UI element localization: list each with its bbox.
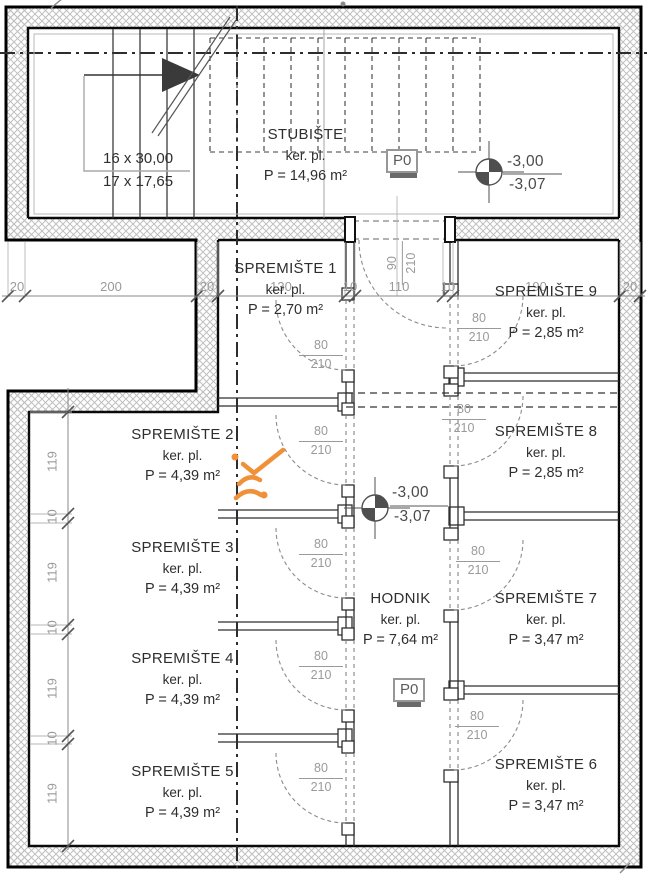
door-width: 80 [299,649,343,667]
room-area: P = 3,47 m² [472,798,620,814]
door-height: 210 [311,556,332,570]
dim-label: 10 [45,497,60,537]
room-name: STUBIŠTE [233,126,378,143]
door-height: 210 [404,253,418,274]
door-size-label: 80 210 [299,537,343,571]
dim-label: 10 [45,719,60,759]
dim-label: 10 [45,608,60,648]
door-width: 80 [456,544,500,562]
room-area: P = 2,70 m² [213,302,358,318]
stair-riser-count: 16 x 30,00 [103,150,173,167]
dim-label: 119 [45,442,60,482]
room-material: ker. pl. [328,612,473,627]
dim-label: 119 [45,553,60,593]
dim-label: 119 [45,669,60,709]
room-area: P = 4,39 m² [110,692,255,708]
room-name: SPREMIŠTE 1 [213,260,358,277]
room-name: SPREMIŠTE 2 [110,426,255,443]
door-height: 210 [454,421,475,435]
room-name: SPREMIŠTE 4 [110,650,255,667]
room-area: P = 4,39 m² [110,581,255,597]
room-area: P = 2,85 m² [472,465,620,481]
door-size-label: 80 210 [442,402,486,436]
level-value-lower: -3,07 [394,508,431,526]
room-material: ker. pl. [472,778,620,793]
door-width: 90 [385,241,403,285]
room-material: ker. pl. [110,785,255,800]
level-value-upper: -3,00 [507,153,544,171]
door-width: 80 [299,537,343,555]
room-name: SPREMIŠTE 3 [110,539,255,556]
door-size-label: 80 210 [457,311,501,345]
room-name: SPREMIŠTE 9 [472,283,620,300]
dim-label: 10 [428,279,468,294]
room-label-spremiste-6: SPREMIŠTE 6 ker. pl. P = 3,47 m² [472,756,620,814]
stair-riser-size: 17 x 17,65 [103,173,173,190]
room-name: SPREMIŠTE 7 [472,590,620,607]
room-area: P = 4,39 m² [110,805,255,821]
level-value-lower: -3,07 [509,176,546,194]
room-material: ker. pl. [233,148,378,163]
room-label-stubiste: STUBIŠTE ker. pl. P = 14,96 m² [233,126,378,184]
door-width: 80 [299,338,343,356]
door-size-label: 80 210 [299,338,343,372]
floor-stamp-p0: P0 [386,149,418,173]
room-area: P = 14,96 m² [233,168,378,184]
door-size-label: 80 210 [299,761,343,795]
room-material: ker. pl. [110,561,255,576]
door-size-label: 80 210 [455,709,499,743]
dim-label: 119 [45,774,60,814]
room-label-spremiste-1: SPREMIŠTE 1 ker. pl. P = 2,70 m² [213,260,358,318]
door-height: 210 [467,728,488,742]
room-area: P = 4,39 m² [110,468,255,484]
room-label-spremiste-4: SPREMIŠTE 4 ker. pl. P = 4,39 m² [110,650,255,708]
door-width: 80 [442,402,486,420]
room-label-spremiste-3: SPREMIŠTE 3 ker. pl. P = 4,39 m² [110,539,255,597]
door-size-label: 80 210 [456,544,500,578]
floor-plan: STUBIŠTE ker. pl. P = 14,96 m² 16 x 30,0… [0,0,647,874]
door-height: 210 [311,780,332,794]
door-width: 80 [457,311,501,329]
door-width: 80 [455,709,499,727]
door-height: 210 [469,330,490,344]
door-size-label: 80 210 [299,649,343,683]
room-name: HODNIK [328,590,473,607]
entrance-door-size-label: 90 210 [385,241,419,285]
room-material: ker. pl. [472,445,620,460]
door-size-label: 80 210 [299,424,343,458]
room-label-spremiste-5: SPREMIŠTE 5 ker. pl. P = 4,39 m² [110,763,255,821]
door-width: 80 [299,761,343,779]
room-material: ker. pl. [213,282,358,297]
room-label-spremiste-8: SPREMIŠTE 8 ker. pl. P = 2,85 m² [472,423,620,481]
room-name: SPREMIŠTE 5 [110,763,255,780]
room-material: ker. pl. [110,448,255,463]
room-material: ker. pl. [472,612,620,627]
door-height: 210 [311,443,332,457]
level-value-upper: -3,00 [392,484,429,502]
floor-stamp-p0: P0 [393,678,425,702]
room-area: P = 7,64 m² [328,632,473,648]
door-height: 210 [468,563,489,577]
room-material: ker. pl. [110,672,255,687]
door-height: 210 [311,668,332,682]
dim-label: 20 [0,279,37,294]
room-name: SPREMIŠTE 8 [472,423,620,440]
room-label-spremiste-7: SPREMIŠTE 7 ker. pl. P = 3,47 m² [472,590,620,648]
door-height: 210 [311,357,332,371]
door-opening-dashes [346,296,458,823]
room-area: P = 3,47 m² [472,632,620,648]
door-width: 80 [299,424,343,442]
room-label-hodnik: HODNIK ker. pl. P = 7,64 m² [328,590,473,648]
dim-label: 200 [91,279,131,294]
room-label-spremiste-2: SPREMIŠTE 2 ker. pl. P = 4,39 m² [110,426,255,484]
room-name: SPREMIŠTE 6 [472,756,620,773]
